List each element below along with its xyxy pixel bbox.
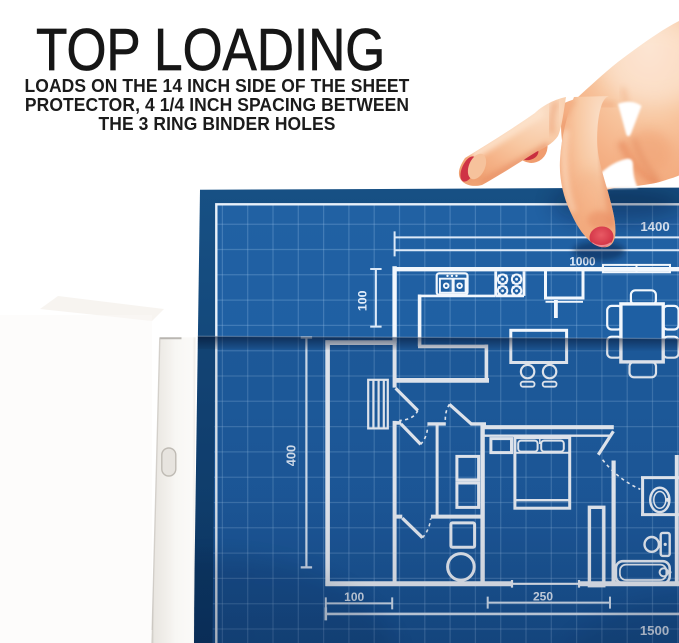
svg-text:100: 100 (355, 290, 369, 311)
